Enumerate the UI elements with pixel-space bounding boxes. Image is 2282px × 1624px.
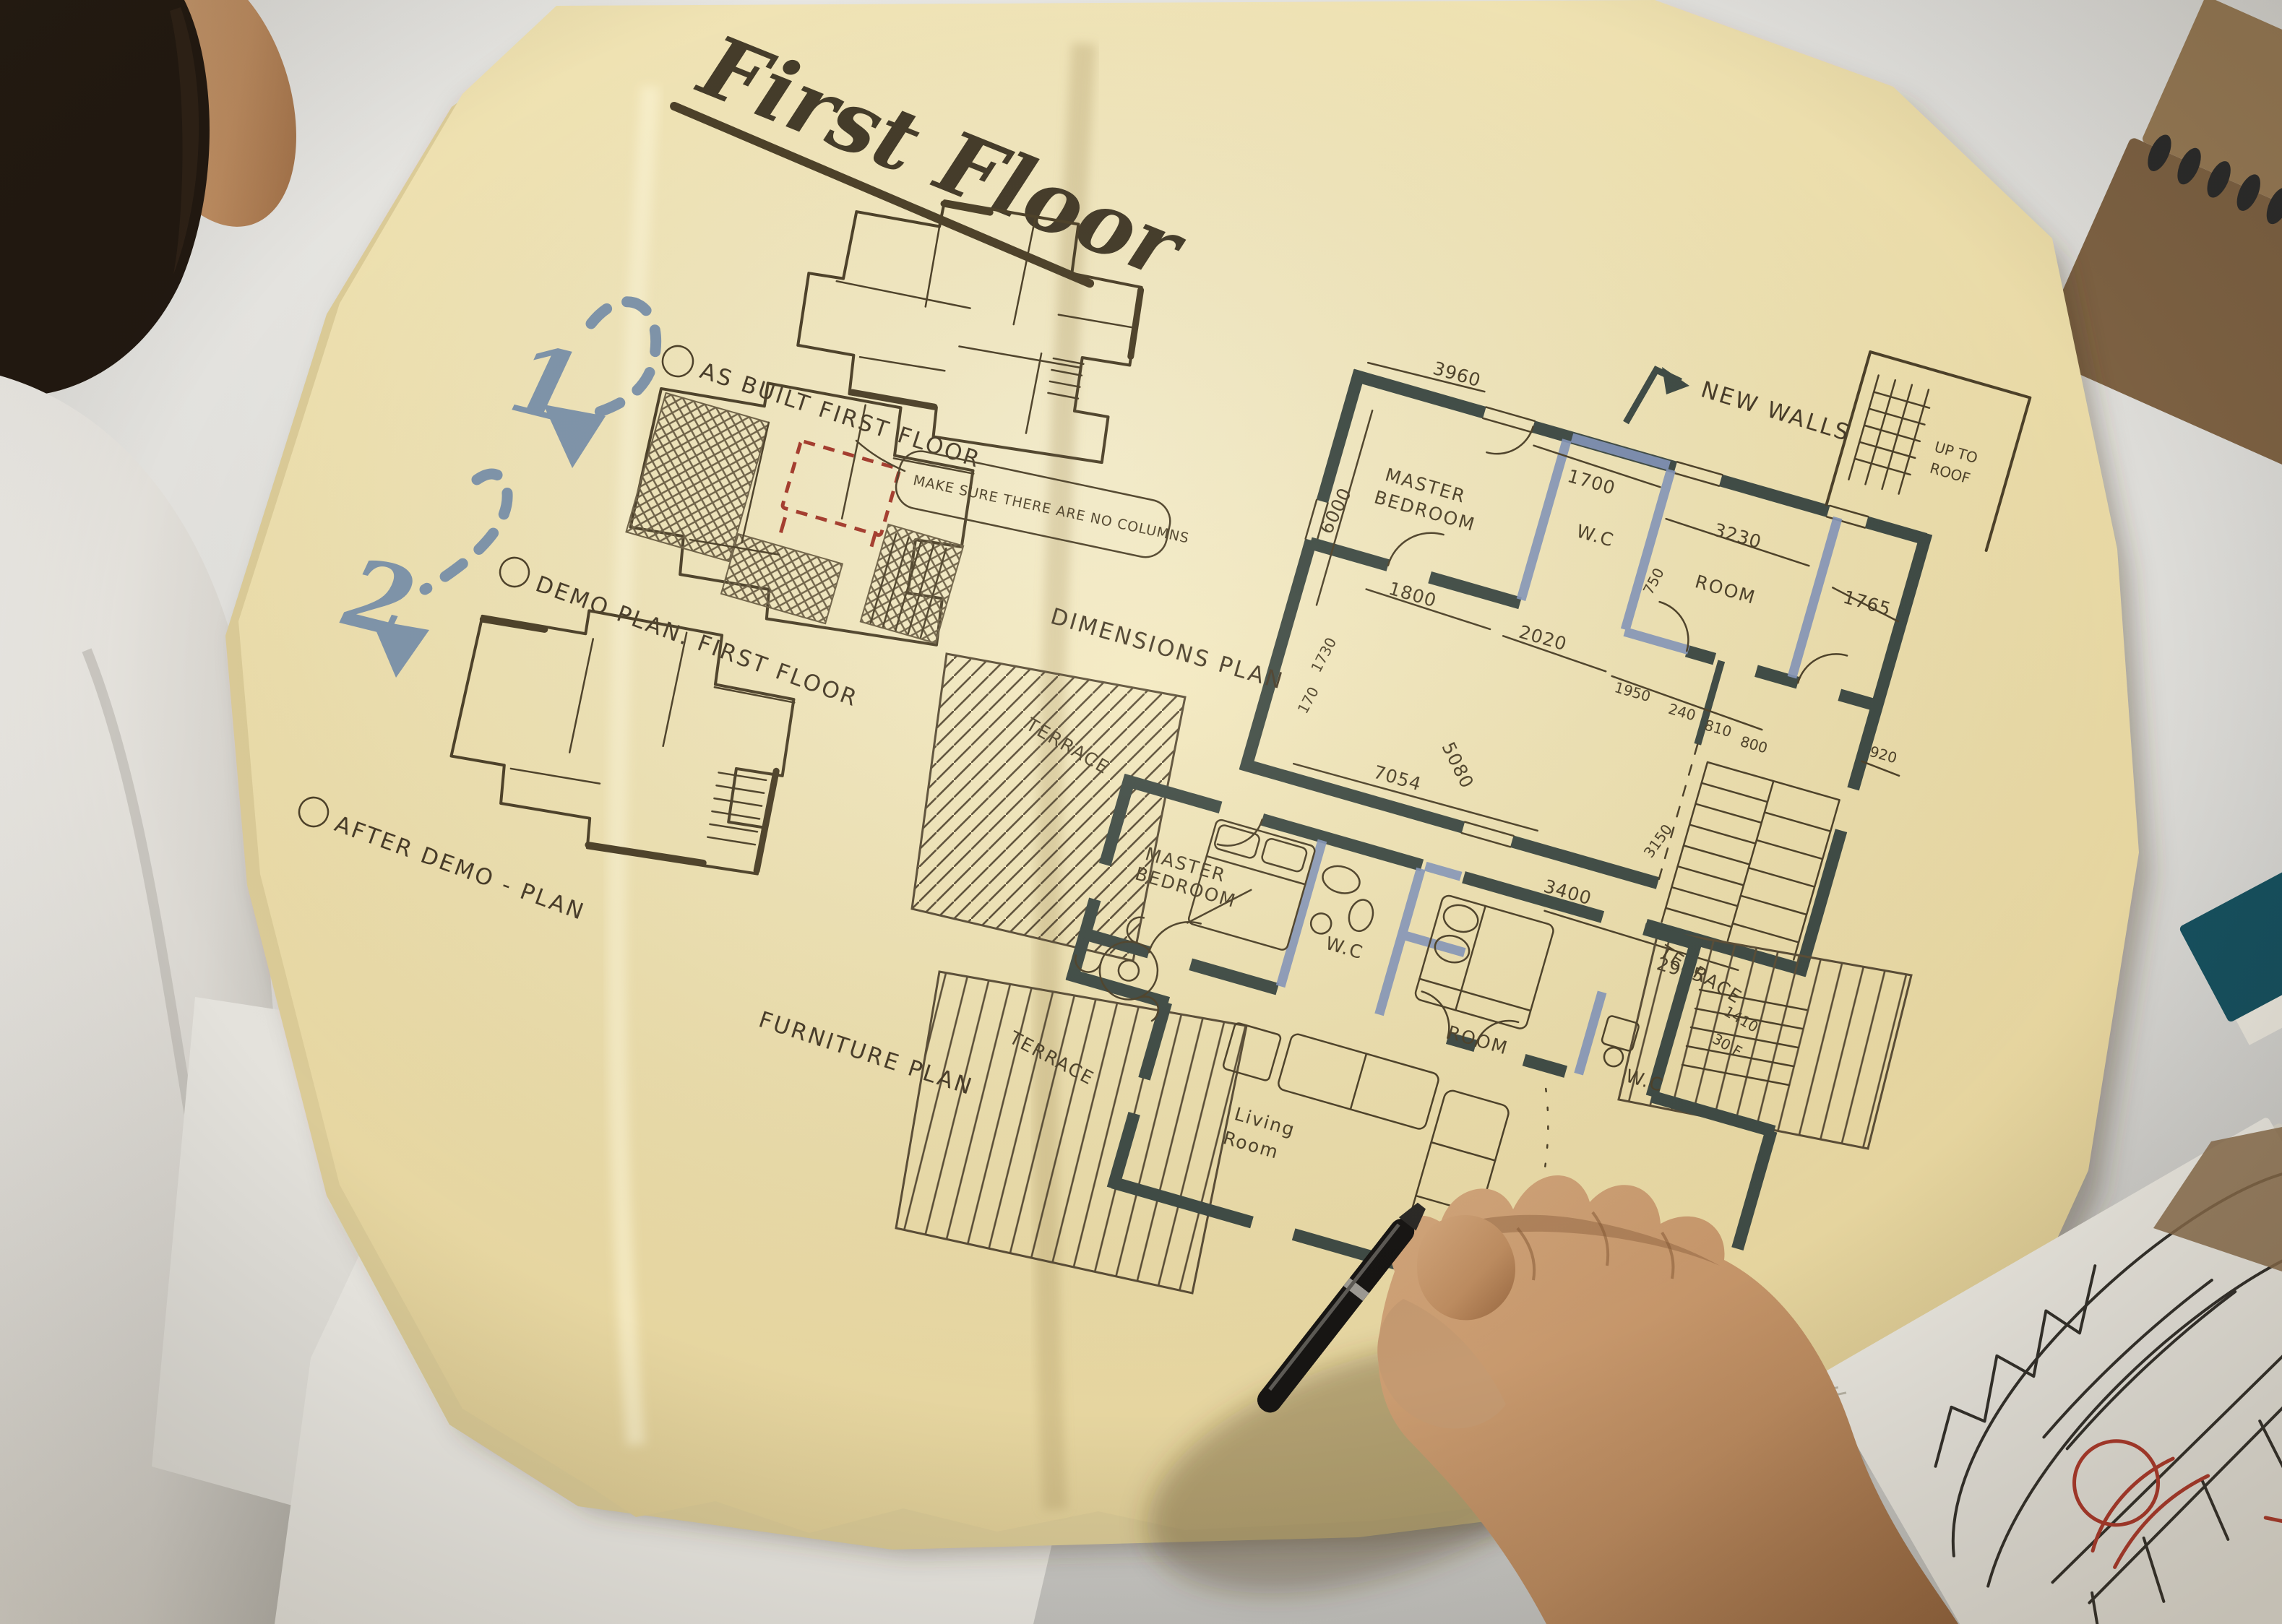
scene-canvas: page 1 of 2 First Floor AS BUILT FIRST F… [0,0,2282,1624]
photo-vignette [0,0,2282,1624]
photo-scene: page 1 of 2 First Floor AS BUILT FIRST F… [0,0,2282,1624]
